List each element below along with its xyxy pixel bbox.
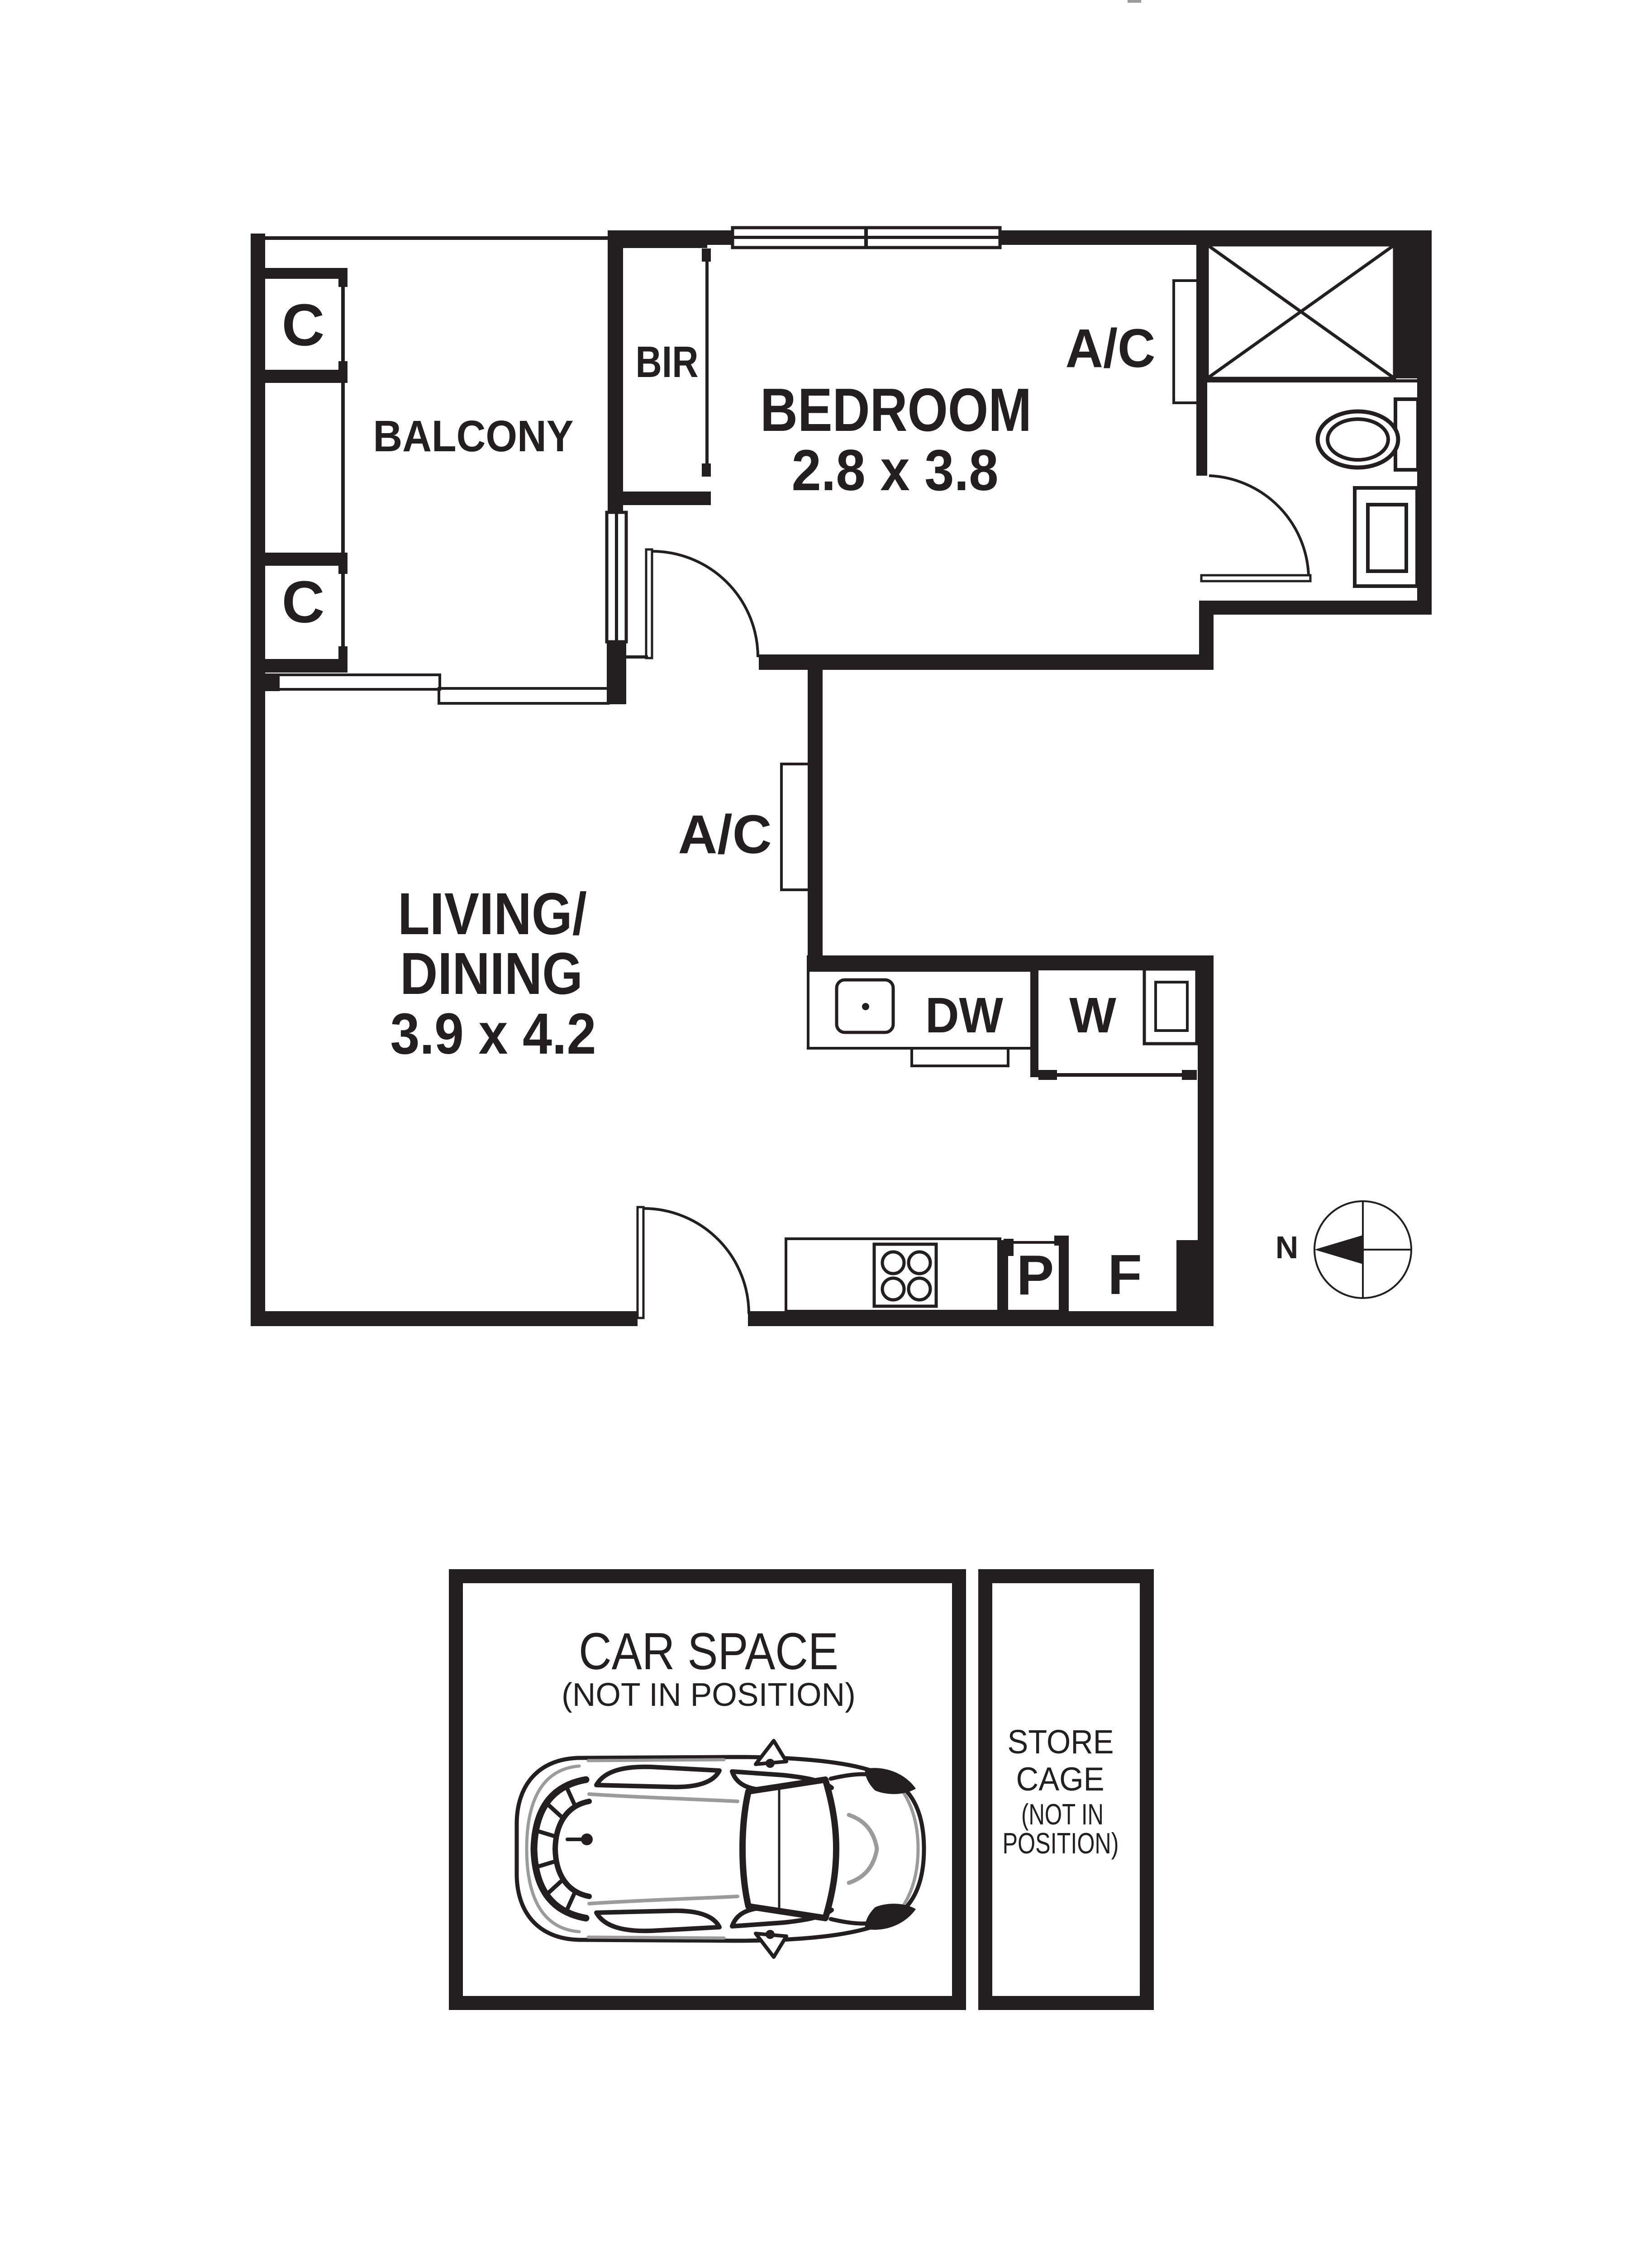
svg-text:DINING: DINING xyxy=(400,940,583,1007)
svg-text:(NOT IN: (NOT IN xyxy=(1021,1798,1104,1831)
svg-text:POSITION): POSITION) xyxy=(1003,1827,1119,1860)
svg-text:A/C: A/C xyxy=(678,803,772,865)
svg-text:DW: DW xyxy=(925,988,1003,1043)
svg-text:BEDROOM: BEDROOM xyxy=(760,376,1032,444)
svg-text:BALCONY: BALCONY xyxy=(373,411,574,461)
svg-text:(NOT IN POSITION): (NOT IN POSITION) xyxy=(562,1677,856,1713)
svg-text:STORE: STORE xyxy=(1008,1723,1114,1761)
svg-text:C: C xyxy=(282,568,325,635)
svg-text:2.8 x 3.8: 2.8 x 3.8 xyxy=(792,438,999,503)
svg-text:CAR SPACE: CAR SPACE xyxy=(579,1623,838,1681)
svg-text:N: N xyxy=(1276,1230,1299,1265)
svg-text:LIVING/: LIVING/ xyxy=(398,880,587,947)
svg-text:W: W xyxy=(1069,988,1116,1043)
svg-text:BIR: BIR xyxy=(636,337,699,387)
svg-text:F: F xyxy=(1108,1244,1142,1306)
svg-text:C: C xyxy=(282,291,325,358)
svg-text:CAGE: CAGE xyxy=(1016,1761,1105,1798)
svg-text:3.9 x 4.2: 3.9 x 4.2 xyxy=(390,1002,596,1066)
svg-text:A/C: A/C xyxy=(1066,317,1156,379)
svg-text:P: P xyxy=(1017,1244,1054,1307)
